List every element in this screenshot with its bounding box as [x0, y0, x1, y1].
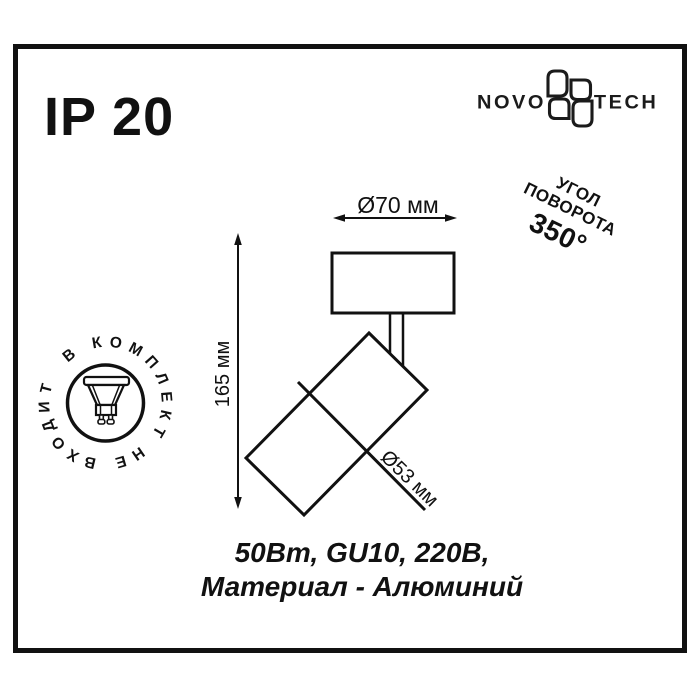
- mount-plate: [332, 253, 454, 313]
- product-spec-sheet: { "colors": { "ink": "#111111", "backgro…: [0, 0, 700, 700]
- height-dimension-line: [234, 233, 242, 509]
- mount-diameter-label: Ø70 мм: [357, 192, 439, 218]
- specs-line1: 50Вт, GU10, 220В,: [42, 536, 682, 570]
- height-label: 165 мм: [212, 341, 234, 407]
- body-diameter-label: Ø53 мм: [376, 446, 442, 511]
- product-specs: 50Вт, GU10, 220В, Материал - Алюминий: [42, 536, 682, 604]
- spotlight-body: [246, 333, 427, 515]
- specs-line2: Материал - Алюминий: [42, 570, 682, 604]
